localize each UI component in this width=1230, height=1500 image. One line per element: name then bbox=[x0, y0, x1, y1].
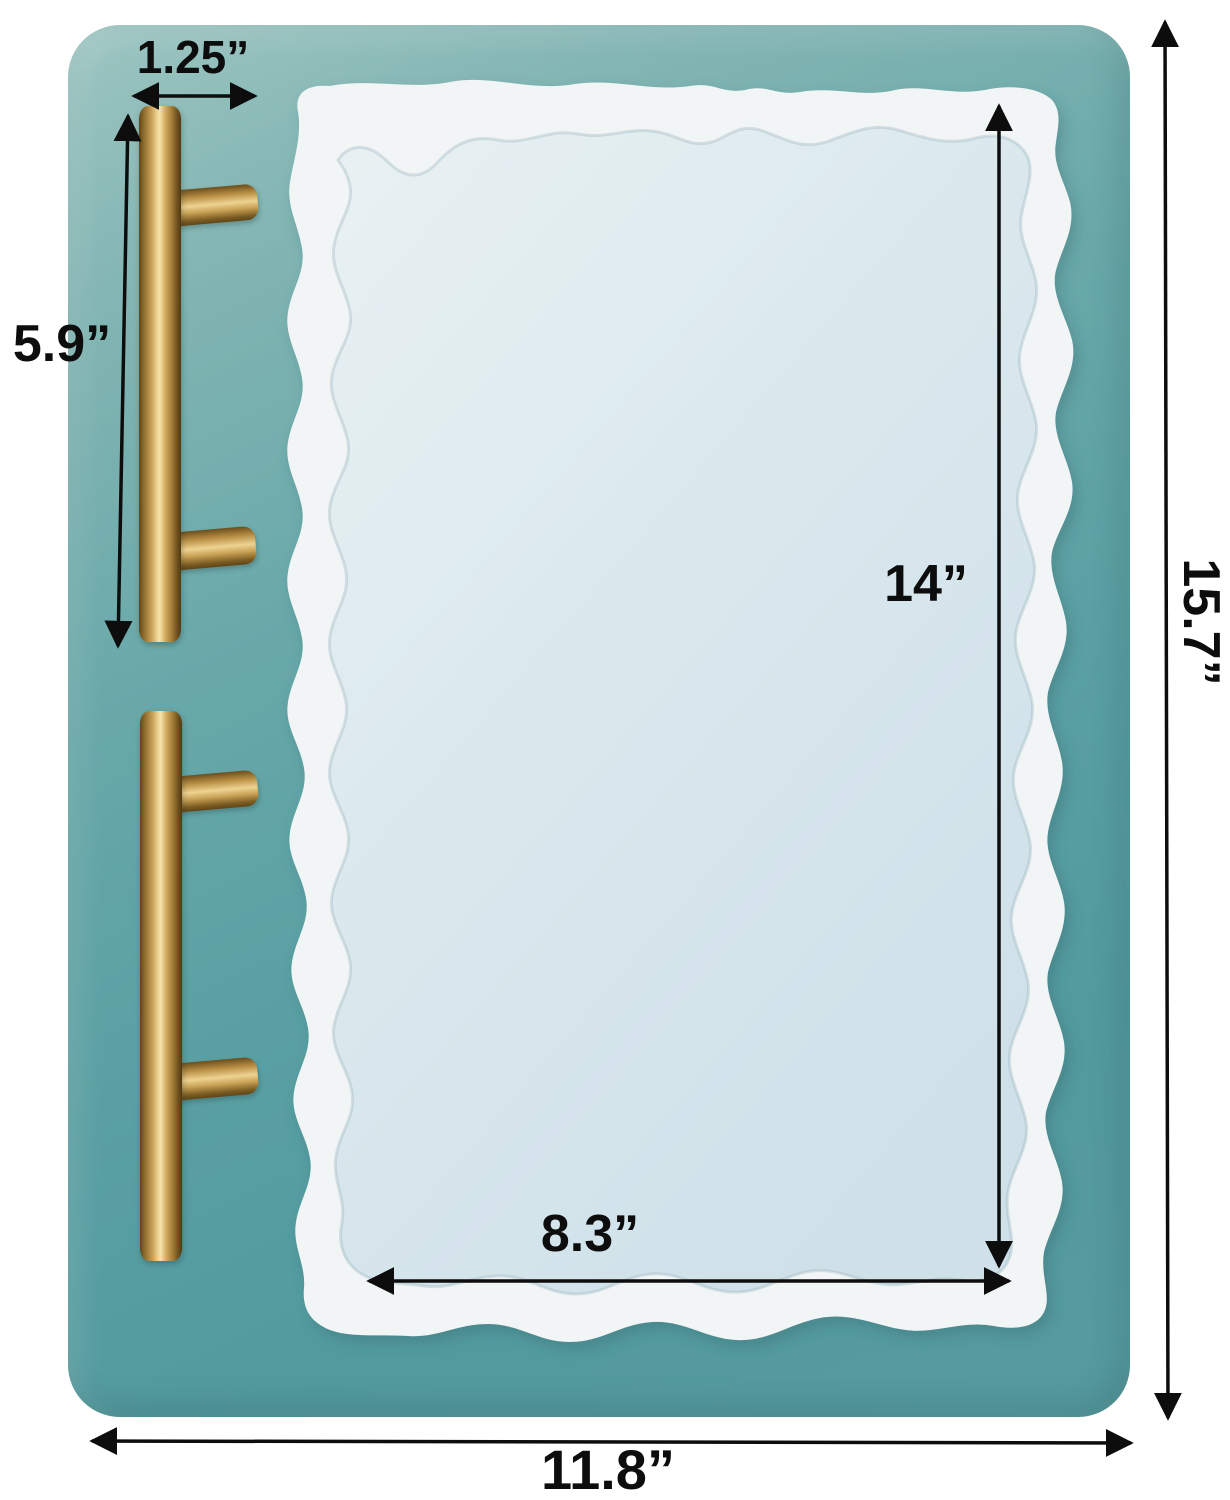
dimension-label-mat-width: 11.8” bbox=[541, 1442, 675, 1498]
dimension-arrows bbox=[0, 0, 1230, 1500]
product-diagram: 1.25” 5.9” 14” 8.3” 15.7” 11.8” bbox=[0, 0, 1230, 1500]
dimension-label-handle-length: 5.9” bbox=[13, 318, 111, 370]
arrow-handle-length bbox=[118, 116, 128, 646]
dimension-label-mold-height: 14” bbox=[884, 558, 968, 610]
dimension-label-mat-height: 15.7” bbox=[1175, 558, 1227, 685]
dimension-label-handle-spacing: 1.25” bbox=[137, 34, 250, 80]
dimension-label-mold-width: 8.3” bbox=[541, 1208, 639, 1260]
arrow-mat-height bbox=[1165, 22, 1168, 1418]
